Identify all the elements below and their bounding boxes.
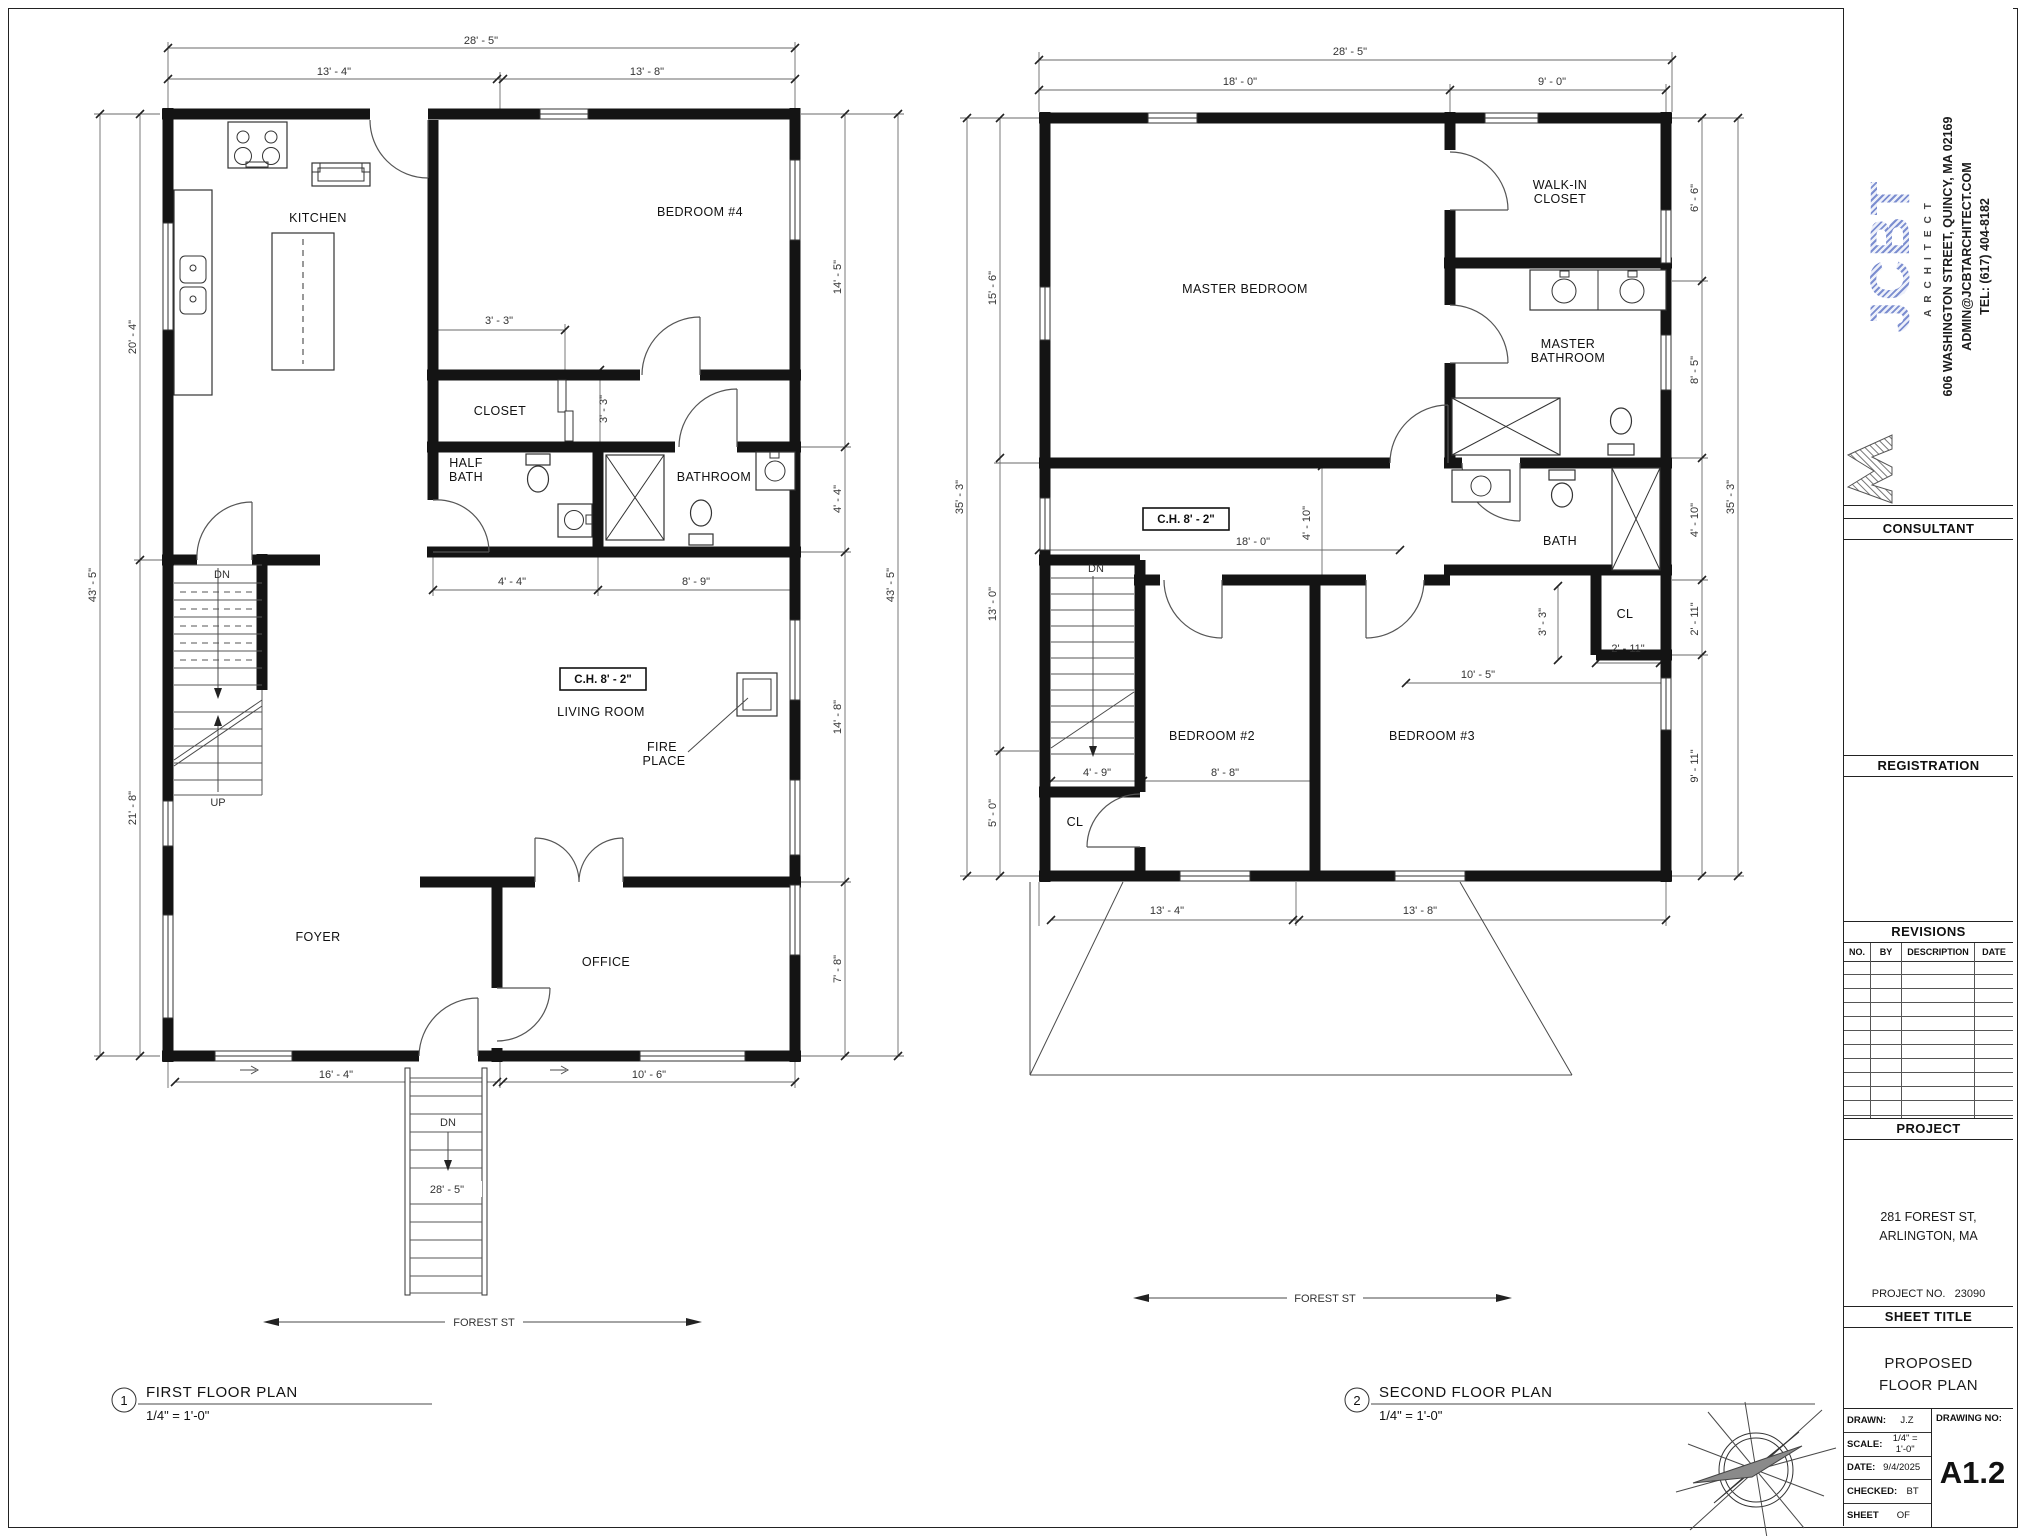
dim-f2-right-4: 2' - 11" [1689, 602, 1701, 635]
label-stair-dn-f2: DN [1088, 563, 1104, 575]
dim-f1-right-3: 14' - 8" [832, 700, 844, 734]
room-label-closet: CLOSET [474, 404, 526, 418]
info-row-drawn: DRAWN: J.Z [1844, 1409, 1931, 1433]
master-bath-vanity-icon [1530, 270, 1666, 310]
dim-f1-top-overall: 28' - 5" [464, 35, 498, 47]
revisions-row [1844, 1101, 2013, 1115]
roof-outline [1030, 882, 1572, 1075]
dim-f2-closet3-w: 2' - 11" [1611, 643, 1644, 655]
dim-f1-top-right: 13' - 8" [630, 66, 664, 78]
callout-scale-2: 1/4" = 1'-0" [1379, 1408, 1443, 1423]
dim-f2-top-left: 18' - 0" [1223, 76, 1257, 88]
kitchen-sink-icon [174, 190, 212, 395]
revisions-row [1844, 961, 2013, 975]
dim-f2-top-right: 9' - 0" [1538, 76, 1566, 88]
dim-f1-bottom-right: 10' - 6" [632, 1069, 666, 1081]
master-bath-shower-icon [1452, 398, 1560, 455]
dim-f2-bottom-left: 13' - 4" [1150, 905, 1184, 917]
room-label-walkin-2: CLOSET [1534, 192, 1586, 206]
dim-f2-left-overall: 35' - 3" [954, 480, 966, 514]
scale-value: 1/4" = 1'-0" [1882, 1433, 1928, 1455]
dim-f1-right-overall: 43' - 5" [885, 568, 897, 602]
revisions-col-description: DESCRIPTION [1902, 943, 1975, 961]
bathroom-toilet-icon [689, 500, 713, 545]
bath-sink-icon [1452, 470, 1510, 502]
dim-f1-right-2: 4' - 4" [832, 485, 844, 513]
room-label-bedroom4: BEDROOM #4 [657, 205, 743, 219]
room-label-bedroom3: BEDROOM #3 [1389, 729, 1475, 743]
dim-f1-right-1: 14' - 5" [832, 260, 844, 294]
section-sheet-title: SHEET TITLE [1844, 1306, 2013, 1328]
revisions-col-by: BY [1871, 943, 1902, 961]
logo-jc: JC [1862, 259, 1918, 333]
label-fireplace-2: PLACE [643, 754, 686, 768]
drawing-no-cell: DRAWING NO: A1.2 [1932, 1409, 2013, 1527]
info-row-checked: CHECKED: BT [1844, 1480, 1931, 1504]
checked-value: BT [1897, 1486, 1928, 1497]
title-block: JC BT ARCHITECT 606 WASHINGTON STREET, Q… [1843, 8, 2013, 1526]
dim-f2-right-overall: 35' - 3" [1725, 480, 1737, 514]
revisions-header-row: NO. BY DESCRIPTION DATE [1844, 943, 2013, 962]
revisions-col-no: NO. [1844, 943, 1871, 961]
dim-f1-left-overall: 43' - 5" [87, 568, 99, 602]
project-address-2: ARLINGTON, MA [1844, 1227, 2013, 1246]
dim-f2-right-1: 6' - 6" [1689, 184, 1701, 212]
room-label-bathroom: BATHROOM [677, 470, 752, 484]
dim-f2-left-1: 15' - 6" [987, 271, 999, 305]
firm-email: ADMIN@JCBTARCHITECT.COM [1958, 117, 1977, 397]
section-project: PROJECT [1844, 1118, 2013, 1140]
entry-stairs [405, 1068, 487, 1295]
label-street-f2: FOREST ST [1294, 1293, 1356, 1305]
revisions-row [1844, 1017, 2013, 1031]
revisions-row [1844, 975, 2013, 989]
dim-f1-bath-w: 8' - 9" [682, 576, 710, 588]
project-address-1: 281 FOREST ST, [1844, 1208, 2013, 1227]
section-consultant: CONSULTANT [1844, 518, 2013, 540]
logo-tagline: ARCHITECT [1923, 196, 1934, 317]
room-label-kitchen: KITCHEN [289, 211, 347, 225]
drawn-label: DRAWN: [1847, 1415, 1886, 1426]
first-floor-stairs [174, 565, 262, 795]
revisions-row [1844, 1031, 2013, 1045]
callout-title-2: SECOND FLOOR PLAN [1379, 1384, 1553, 1401]
label-stair-up-f1: UP [210, 797, 225, 809]
room-label-bath: BATH [1543, 534, 1577, 548]
firm-phone: TEL: (617) 404-8182 [1976, 117, 1995, 397]
sheet-label: SHEET [1847, 1510, 1879, 1521]
drawing-no-value: A1.2 [1932, 1455, 2013, 1491]
info-row-sheet: SHEET OF [1844, 1504, 1931, 1527]
revisions-row [1844, 1059, 2013, 1073]
callout-title-1: FIRST FLOOR PLAN [146, 1384, 298, 1401]
date-value: 9/4/2025 [1875, 1462, 1928, 1473]
stove-icon [228, 122, 287, 168]
revisions-rows [1844, 961, 2013, 1130]
section-revisions: REVISIONS [1844, 921, 2013, 943]
callout-number-2: 2 [1353, 1393, 1360, 1408]
dim-f2-bottom-right: 13' - 8" [1403, 905, 1437, 917]
second-floor-stairs [1051, 576, 1134, 757]
sheet-title-line1: PROPOSED [1844, 1353, 2013, 1375]
dim-f2-closet3-d: 3' - 3" [1537, 608, 1549, 636]
label-entry-dn: DN [440, 1117, 456, 1129]
first-floor-callout: 1 FIRST FLOOR PLAN 1/4" = 1'-0" [112, 1384, 432, 1423]
dim-f2-hall-w: 18' - 0" [1236, 536, 1270, 548]
dim-f1-entry-stair: 28' - 5" [430, 1184, 464, 1196]
checked-label: CHECKED: [1847, 1486, 1897, 1497]
room-label-half-bath-2: BATH [449, 470, 483, 484]
room-label-master-bath-2: BATHROOM [1531, 351, 1606, 365]
dim-f1-closet-d: 3' - 3" [598, 395, 610, 423]
dim-f1-bottom-left: 16' - 4" [319, 1069, 353, 1081]
dim-f2-hall-d: 4' - 10" [1301, 506, 1313, 540]
firm-logo-area: JC BT ARCHITECT 606 WASHINGTON STREET, Q… [1844, 8, 2013, 506]
callout-scale-1: 1/4" = 1'-0" [146, 1408, 210, 1423]
ceiling-height-f1: C.H. 8' - 2" [574, 674, 631, 686]
info-grid: DRAWN: J.Z SCALE: 1/4" = 1'-0" DATE: 9/4… [1844, 1408, 2013, 1527]
project-number-value: 23090 [1955, 1288, 1986, 1300]
revisions-col-date: DATE [1975, 943, 2013, 961]
sheet-title-line2: FLOOR PLAN [1844, 1375, 2013, 1397]
revisions-row [1844, 1073, 2013, 1087]
project-number-label: PROJECT NO. [1872, 1288, 1946, 1300]
revisions-row [1844, 1003, 2013, 1017]
room-label-closet-left: CL [1067, 815, 1084, 829]
room-label-bedroom2: BEDROOM #2 [1169, 729, 1255, 743]
half-bath-toilet-icon [526, 454, 550, 492]
bath-tub-icon [1612, 468, 1660, 570]
firm-logo: JC BT [1862, 180, 1918, 332]
master-bath-toilet-icon [1608, 408, 1634, 455]
info-row-scale: SCALE: 1/4" = 1'-0" [1844, 1433, 1931, 1457]
ceiling-height-f2: C.H. 8' - 2" [1157, 514, 1214, 526]
drawn-value: J.Z [1886, 1415, 1928, 1426]
room-label-walkin-1: WALK-IN [1533, 178, 1587, 192]
label-street-f1: FOREST ST [453, 1317, 515, 1329]
dim-f2-top-overall: 28' - 5" [1333, 46, 1367, 58]
info-row-date: DATE: 9/4/2025 [1844, 1457, 1931, 1481]
kitchen-counter-bench-icon [312, 163, 370, 186]
room-label-living: LIVING ROOM [557, 705, 645, 719]
dim-f2-left-3: 5' - 0" [987, 799, 999, 827]
dim-f1-left-upper: 20' - 4" [127, 320, 139, 354]
half-bath-sink-icon [558, 504, 592, 537]
section-registration: REGISTRATION [1844, 755, 2013, 777]
logo-zigzag-icon [1844, 433, 1894, 505]
dim-f2-bedroom3-w: 10' - 5" [1461, 669, 1495, 681]
dim-f2-left-2: 13' - 0" [987, 587, 999, 621]
room-label-foyer: FOYER [295, 930, 340, 944]
dim-f1-left-lower: 21' - 8" [127, 791, 139, 825]
bathroom-shower-icon [606, 455, 664, 540]
dim-f1-right-4: 7' - 8" [832, 955, 844, 983]
callout-number-1: 1 [120, 1393, 127, 1408]
floor-plan-drawing: 28' - 5" 13' - 4" 13' - 8" 43' - 5" 20' … [0, 0, 1843, 1536]
dim-f2-right-3: 4' - 10" [1689, 503, 1701, 537]
room-label-half-bath-1: HALF [449, 456, 483, 470]
scale-label: SCALE: [1847, 1439, 1882, 1450]
revisions-row [1844, 989, 2013, 1003]
logo-bt: BT [1862, 180, 1918, 257]
label-stair-dn-f1: DN [214, 569, 230, 581]
dim-f2-right-2: 8' - 5" [1689, 356, 1701, 384]
drawing-sheet: 28' - 5" 13' - 4" 13' - 8" 43' - 5" 20' … [0, 0, 2026, 1536]
dim-f2-bedroom2-w: 8' - 8" [1211, 767, 1239, 779]
second-floor-walls [1039, 112, 1672, 882]
bath-toilet-icon [1549, 470, 1575, 507]
dim-f2-closet2-w: 4' - 9" [1083, 767, 1111, 779]
dim-f1-closet-w: 3' - 3" [485, 315, 513, 327]
second-floor-callout: 2 SECOND FLOOR PLAN 1/4" = 1'-0" [1345, 1384, 1815, 1423]
fireplace-icon [688, 673, 777, 752]
revisions-row [1844, 1087, 2013, 1101]
room-label-closet-right: CL [1617, 607, 1634, 621]
firm-address: 606 WASHINGTON STREET, QUINCY, MA 02169 [1939, 117, 1958, 397]
bathroom-sink-icon [756, 452, 795, 490]
sheet-of: OF [1879, 1510, 1928, 1521]
date-label: DATE: [1847, 1462, 1875, 1473]
first-floor-plan: 28' - 5" 13' - 4" 13' - 8" 43' - 5" 20' … [87, 35, 904, 1423]
dim-f2-right-5: 9' - 11" [1689, 749, 1701, 782]
compass-rose-icon [1676, 1402, 1836, 1536]
revisions-row [1844, 1045, 2013, 1059]
room-label-master-bath-1: MASTER [1541, 337, 1596, 351]
dim-f1-half-bath-w: 4' - 4" [498, 576, 526, 588]
second-floor-plan: 28' - 5" 18' - 0" 9' - 0" 35' - 3" 15' -… [954, 46, 1815, 1423]
label-fireplace-1: FIRE [647, 740, 677, 754]
dim-f1-top-left: 13' - 4" [317, 66, 351, 78]
drawing-no-label: DRAWING NO: [1936, 1413, 2002, 1424]
room-label-master-bedroom: MASTER BEDROOM [1182, 282, 1308, 296]
room-label-office: OFFICE [582, 955, 630, 969]
kitchen-island-icon [272, 233, 334, 370]
